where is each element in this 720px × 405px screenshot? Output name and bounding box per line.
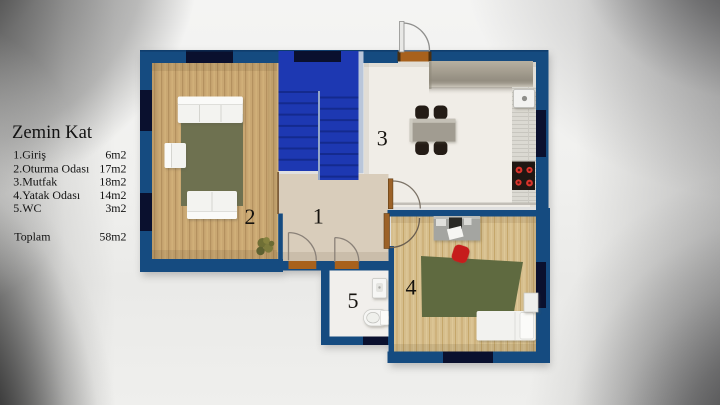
svg-text:6m2: 6m2 — [105, 148, 126, 162]
svg-text:3: 3 — [377, 125, 388, 150]
svg-text:4: 4 — [406, 275, 417, 300]
svg-text:4.Yatak Odası: 4.Yatak Odası — [13, 188, 81, 202]
svg-text:14m2: 14m2 — [99, 188, 126, 202]
svg-text:Toplam: Toplam — [14, 230, 51, 244]
svg-text:3m2: 3m2 — [105, 201, 126, 215]
svg-text:3.Mutfak: 3.Mutfak — [13, 175, 57, 189]
svg-text:2.Oturma Odası: 2.Oturma Odası — [13, 161, 90, 175]
svg-text:1.Giriş: 1.Giriş — [13, 148, 46, 162]
svg-text:17m2: 17m2 — [99, 161, 126, 175]
svg-text:5.WC: 5.WC — [13, 201, 41, 215]
svg-text:5: 5 — [348, 288, 359, 313]
svg-text:Zemin Kat: Zemin Kat — [12, 122, 93, 143]
svg-text:18m2: 18m2 — [99, 175, 126, 189]
svg-text:2: 2 — [245, 204, 256, 229]
svg-text:58m2: 58m2 — [99, 230, 126, 244]
svg-text:1: 1 — [313, 204, 324, 229]
